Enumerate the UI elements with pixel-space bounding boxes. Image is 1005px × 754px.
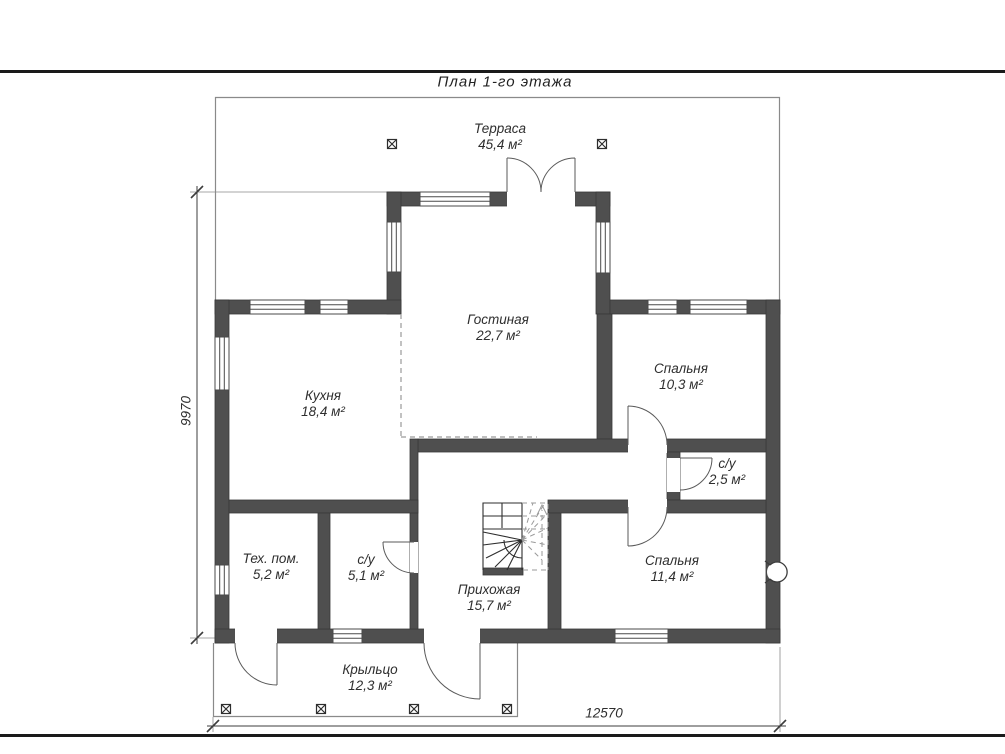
room-label-wc: с/у 5,1 м² [348, 552, 384, 584]
room-label-bedroom-2: Спальня 11,4 м² [645, 553, 699, 585]
room-name: Прихожая [458, 582, 521, 598]
window [596, 222, 610, 273]
dimension-label-horizontal: 12570 [585, 706, 623, 721]
room-name: Тех. пом. [243, 551, 300, 567]
room-area: 45,4 м² [474, 137, 526, 153]
room-area: 10,3 м² [654, 377, 708, 393]
wall-kitchen-top [215, 300, 401, 314]
room-name: с/у [348, 552, 384, 568]
wall-bath-right [410, 439, 418, 629]
column-marker-icon [388, 140, 397, 149]
window [648, 300, 677, 314]
room-area: 18,4 м² [301, 404, 345, 420]
wall-exterior-bottom [215, 629, 780, 643]
dimension-lines [191, 186, 786, 732]
wall-kitchen-bottom [229, 500, 418, 513]
door-entrance [424, 643, 480, 699]
room-area: 12,3 м² [342, 678, 397, 694]
room-area: 2,5 м² [709, 472, 745, 488]
column-marker-icon [222, 705, 231, 714]
room-label-tech-room: Тех. пом. 5,2 м² [243, 551, 300, 583]
room-name: Крыльцо [342, 662, 397, 678]
wall-corridor [418, 439, 766, 452]
floor-plan-sheet: План 1-го этажа [0, 0, 1005, 754]
window [320, 300, 348, 314]
room-name: Кухня [301, 388, 345, 404]
room-area: 22,7 м² [467, 328, 529, 344]
room-label-bedroom-1: Спальня 10,3 м² [654, 361, 708, 393]
wall-tech-bath [318, 513, 330, 629]
floor-plan-drawing [0, 0, 1005, 754]
room-name: Спальня [645, 553, 699, 569]
room-label-wc-small: с/у 2,5 м² [709, 456, 745, 488]
room-area: 5,2 м² [243, 567, 300, 583]
wall-exterior-right [766, 300, 780, 643]
door-terrace-double [507, 158, 575, 192]
door-tech-room [235, 643, 277, 685]
window [420, 192, 490, 206]
vent-circle-icon [765, 561, 787, 583]
room-label-hallway: Прихожая 15,7 м² [458, 582, 521, 614]
wall-bedroom2-left [548, 513, 561, 629]
room-area: 5,1 м² [348, 568, 384, 584]
window [250, 300, 305, 314]
stair-stringer [483, 568, 523, 575]
column-marker-icon [503, 705, 512, 714]
room-label-porch: Крыльцо 12,3 м² [342, 662, 397, 694]
column-marker-icon [317, 705, 326, 714]
room-name: Гостиная [467, 312, 529, 328]
staircase [483, 503, 548, 570]
wall-livingroom-bedroom1 [597, 314, 612, 439]
dimension-label-vertical: 9970 [179, 396, 194, 426]
window [215, 337, 229, 390]
room-name: Терраса [474, 121, 526, 137]
room-area: 11,4 м² [645, 569, 699, 585]
room-area: 15,7 м² [458, 598, 521, 614]
column-marker-icon [410, 705, 419, 714]
window [333, 629, 362, 643]
window [615, 629, 668, 643]
doors [235, 158, 712, 699]
window [690, 300, 747, 314]
room-name: Спальня [654, 361, 708, 377]
window [387, 222, 401, 272]
room-label-living-room: Гостиная 22,7 м² [467, 312, 529, 344]
room-name: с/у [709, 456, 745, 472]
room-label-kitchen: Кухня 18,4 м² [301, 388, 345, 420]
window [215, 565, 229, 595]
room-label-terrace: Терраса 45,4 м² [474, 121, 526, 153]
dimension-ticks [191, 186, 786, 732]
column-marker-icon [598, 140, 607, 149]
door-wc [383, 542, 414, 573]
dimension-extension-lines [190, 192, 780, 732]
door-wc-small [680, 458, 712, 490]
